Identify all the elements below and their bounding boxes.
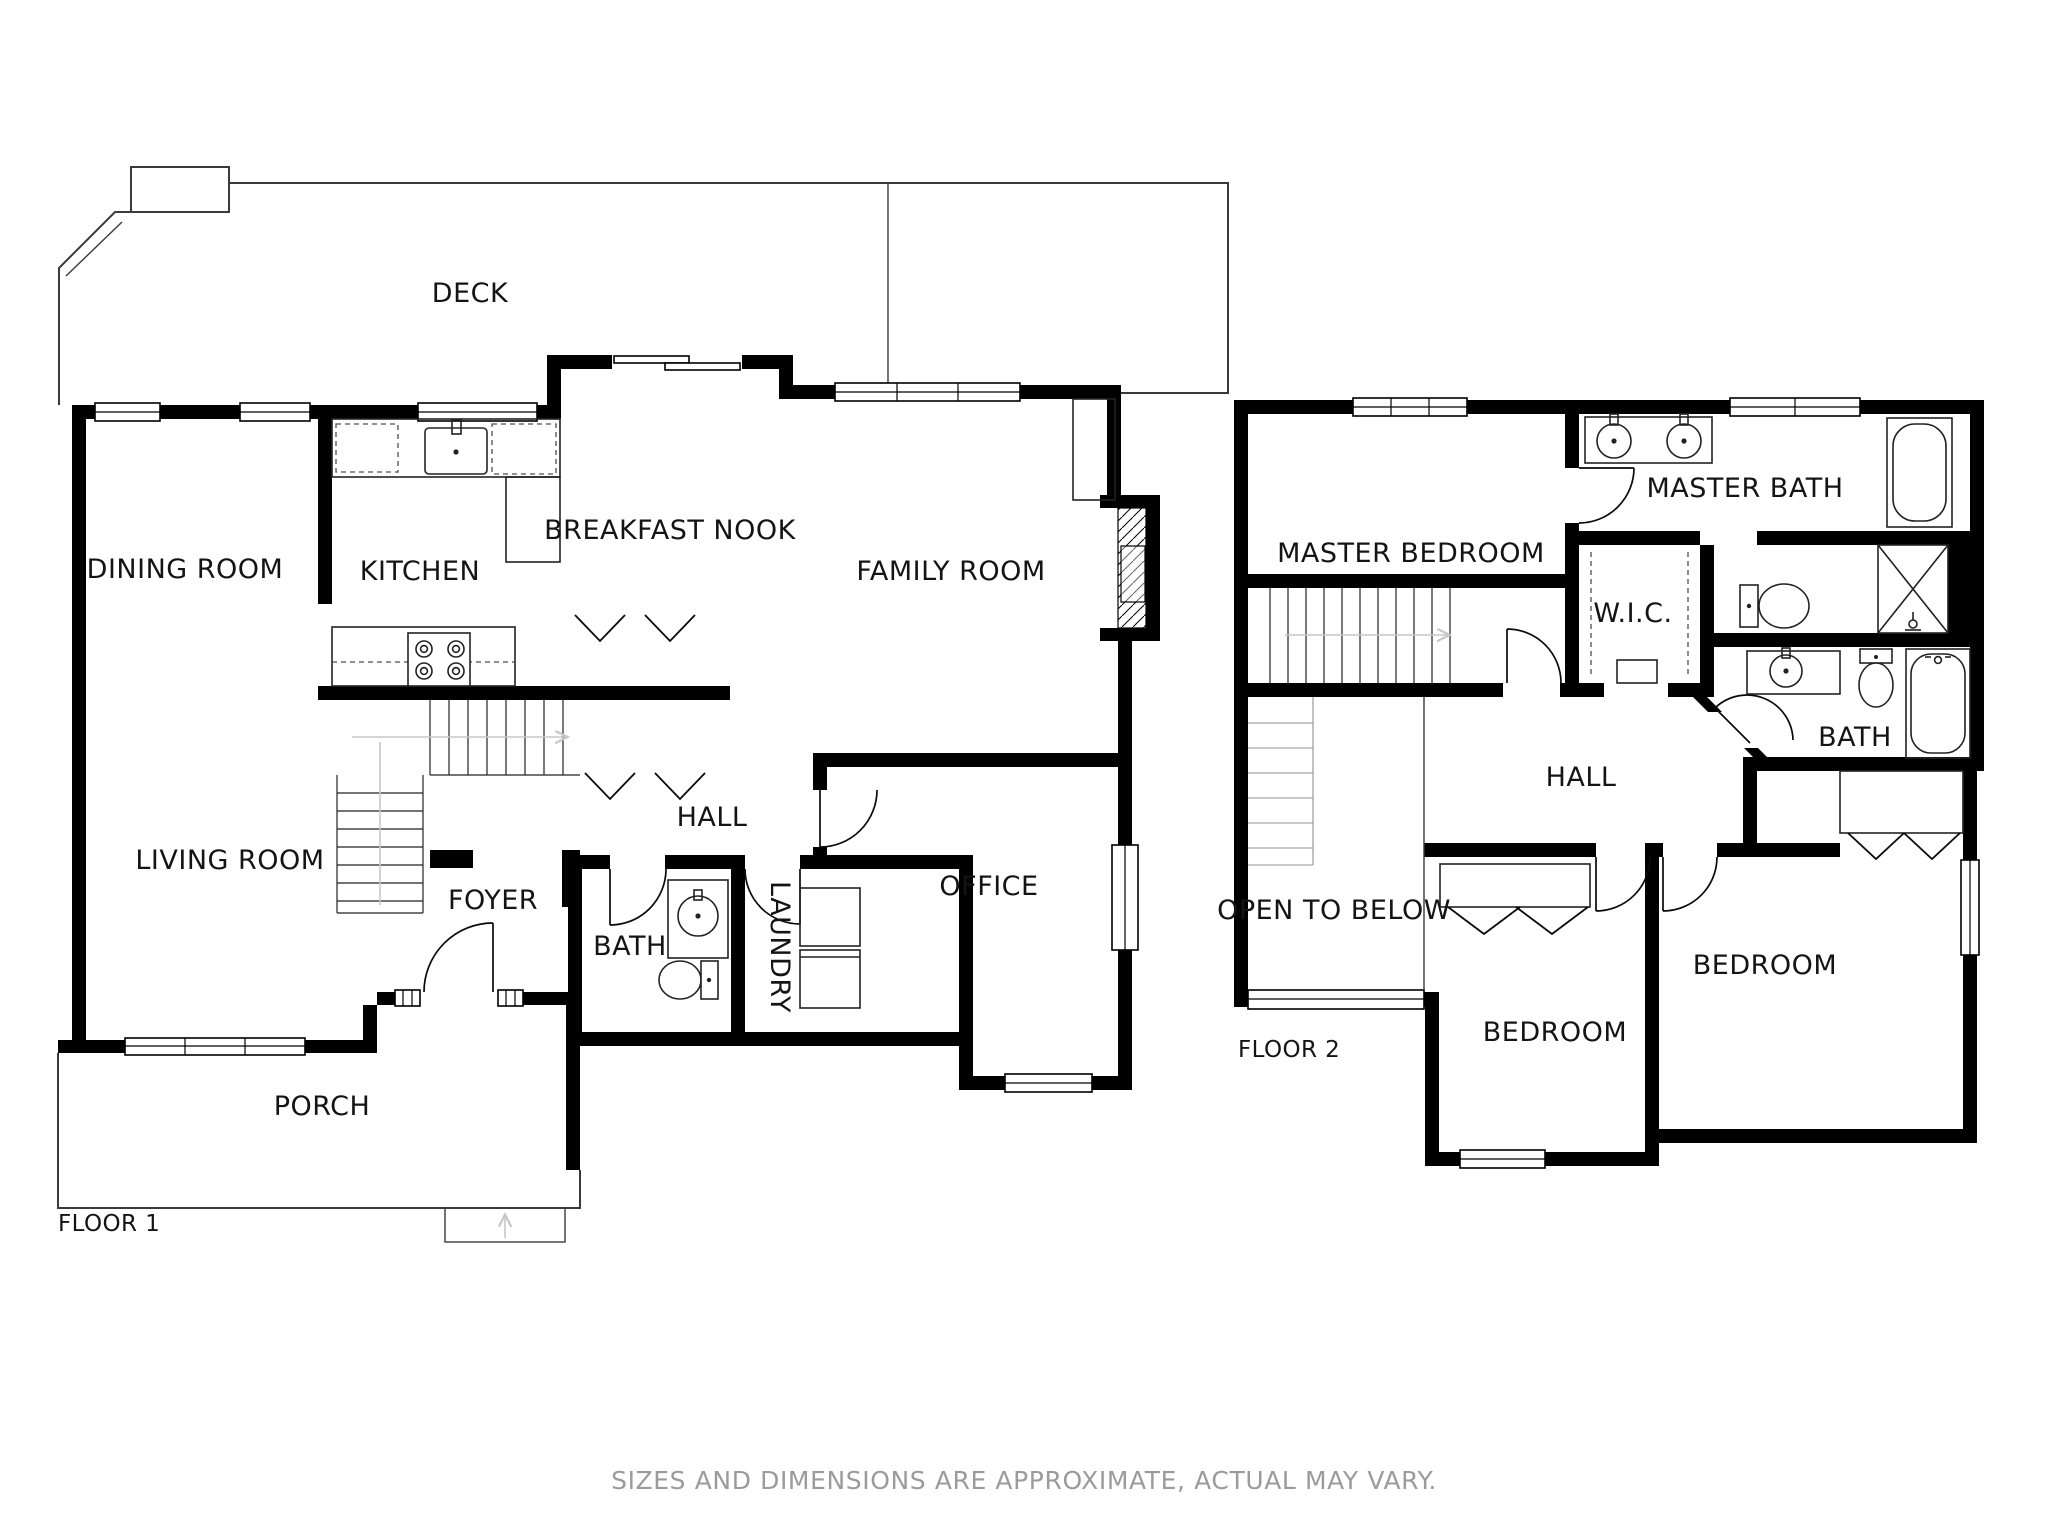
floor1: DECK DINING ROOM KITCHEN BREAKFAST NOOK … (58, 167, 1228, 1242)
sidelite-window (498, 990, 523, 1006)
bedroom-right-door (1663, 857, 1717, 911)
master-bath-door (1579, 468, 1634, 523)
room-label-laundry: LAUNDRY (764, 881, 795, 1013)
sink (1667, 414, 1701, 458)
floor1-windows (95, 355, 1138, 1092)
window (1730, 398, 1860, 416)
tub (1887, 418, 1952, 527)
floorplan-page: DECK DINING ROOM KITCHEN BREAKFAST NOOK … (0, 0, 2048, 1536)
floor1-title: FLOOR 1 (58, 1211, 160, 1237)
floor2-title: FLOOR 2 (1238, 1037, 1340, 1063)
toilet (1740, 584, 1809, 628)
room-label-wic: W.I.C. (1593, 598, 1672, 629)
window (1353, 398, 1467, 416)
room-label-kitchen: KITCHEN (360, 556, 481, 587)
floor2-stairs (1248, 588, 1450, 990)
opening-markers (575, 615, 705, 799)
front-door (424, 923, 493, 992)
stairwell-railing (1248, 990, 1424, 1009)
window (1961, 860, 1979, 955)
floor1-stairs (337, 700, 580, 913)
room-label-bath2: BATH (1818, 722, 1892, 753)
window (125, 1038, 305, 1055)
bath-door (610, 869, 666, 925)
room-label-bath1: BATH (593, 931, 667, 962)
toilet (659, 961, 718, 999)
shower (1878, 545, 1948, 633)
room-label-bedroom-right: BEDROOM (1693, 950, 1837, 981)
room-label-living: LIVING ROOM (135, 845, 324, 876)
kitchen-fixtures (332, 419, 560, 686)
sink (1770, 648, 1802, 687)
window (1005, 1074, 1092, 1092)
open-well-ghost-stairs (1248, 697, 1313, 865)
laundry-appliances (800, 888, 860, 1008)
room-label-deck: DECK (432, 278, 509, 309)
room-label-bedroom-mid: BEDROOM (1483, 1017, 1627, 1048)
sliding-door (612, 355, 742, 370)
floor2: MASTER BEDROOM MASTER BATH W.I.C. BATH H… (1217, 398, 1984, 1168)
kitchen-sink (425, 420, 487, 474)
window (1460, 1150, 1545, 1168)
window (1112, 845, 1138, 950)
bath-sink (678, 890, 718, 936)
window (95, 403, 160, 421)
room-label-foyer: FOYER (448, 885, 538, 916)
room-label-master-bath: MASTER BATH (1647, 473, 1844, 504)
bedroom-mid-door (1596, 857, 1650, 911)
room-label-nook: BREAKFAST NOOK (544, 515, 796, 546)
room-label-hall2: HALL (1546, 762, 1617, 793)
tub (1906, 649, 1970, 758)
room-label-master-bedroom: MASTER BEDROOM (1277, 538, 1545, 569)
sidelite-window (395, 990, 420, 1006)
fireplace (1118, 508, 1146, 628)
room-label-office: OFFICE (939, 871, 1038, 902)
floorplan-canvas: DECK DINING ROOM KITCHEN BREAKFAST NOOK … (0, 0, 2048, 1536)
bath1-fixtures (659, 880, 728, 999)
room-label-porch: PORCH (274, 1091, 371, 1122)
toilet (1859, 649, 1893, 707)
room-label-hall1: HALL (677, 802, 748, 833)
master-bedroom-door (1507, 629, 1561, 683)
room-label-open-below: OPEN TO BELOW (1217, 895, 1451, 926)
room-label-dining: DINING ROOM (87, 554, 284, 585)
room-label-family: FAMILY ROOM (856, 556, 1045, 587)
office-door (820, 790, 877, 847)
sink (1597, 414, 1631, 458)
disclaimer-text: SIZES AND DIMENSIONS ARE APPROXIMATE, AC… (611, 1466, 1437, 1495)
window (240, 403, 310, 421)
bath2-door (1715, 695, 1793, 743)
stove (408, 633, 470, 686)
window (835, 383, 1020, 401)
deck-outline (59, 167, 1228, 405)
